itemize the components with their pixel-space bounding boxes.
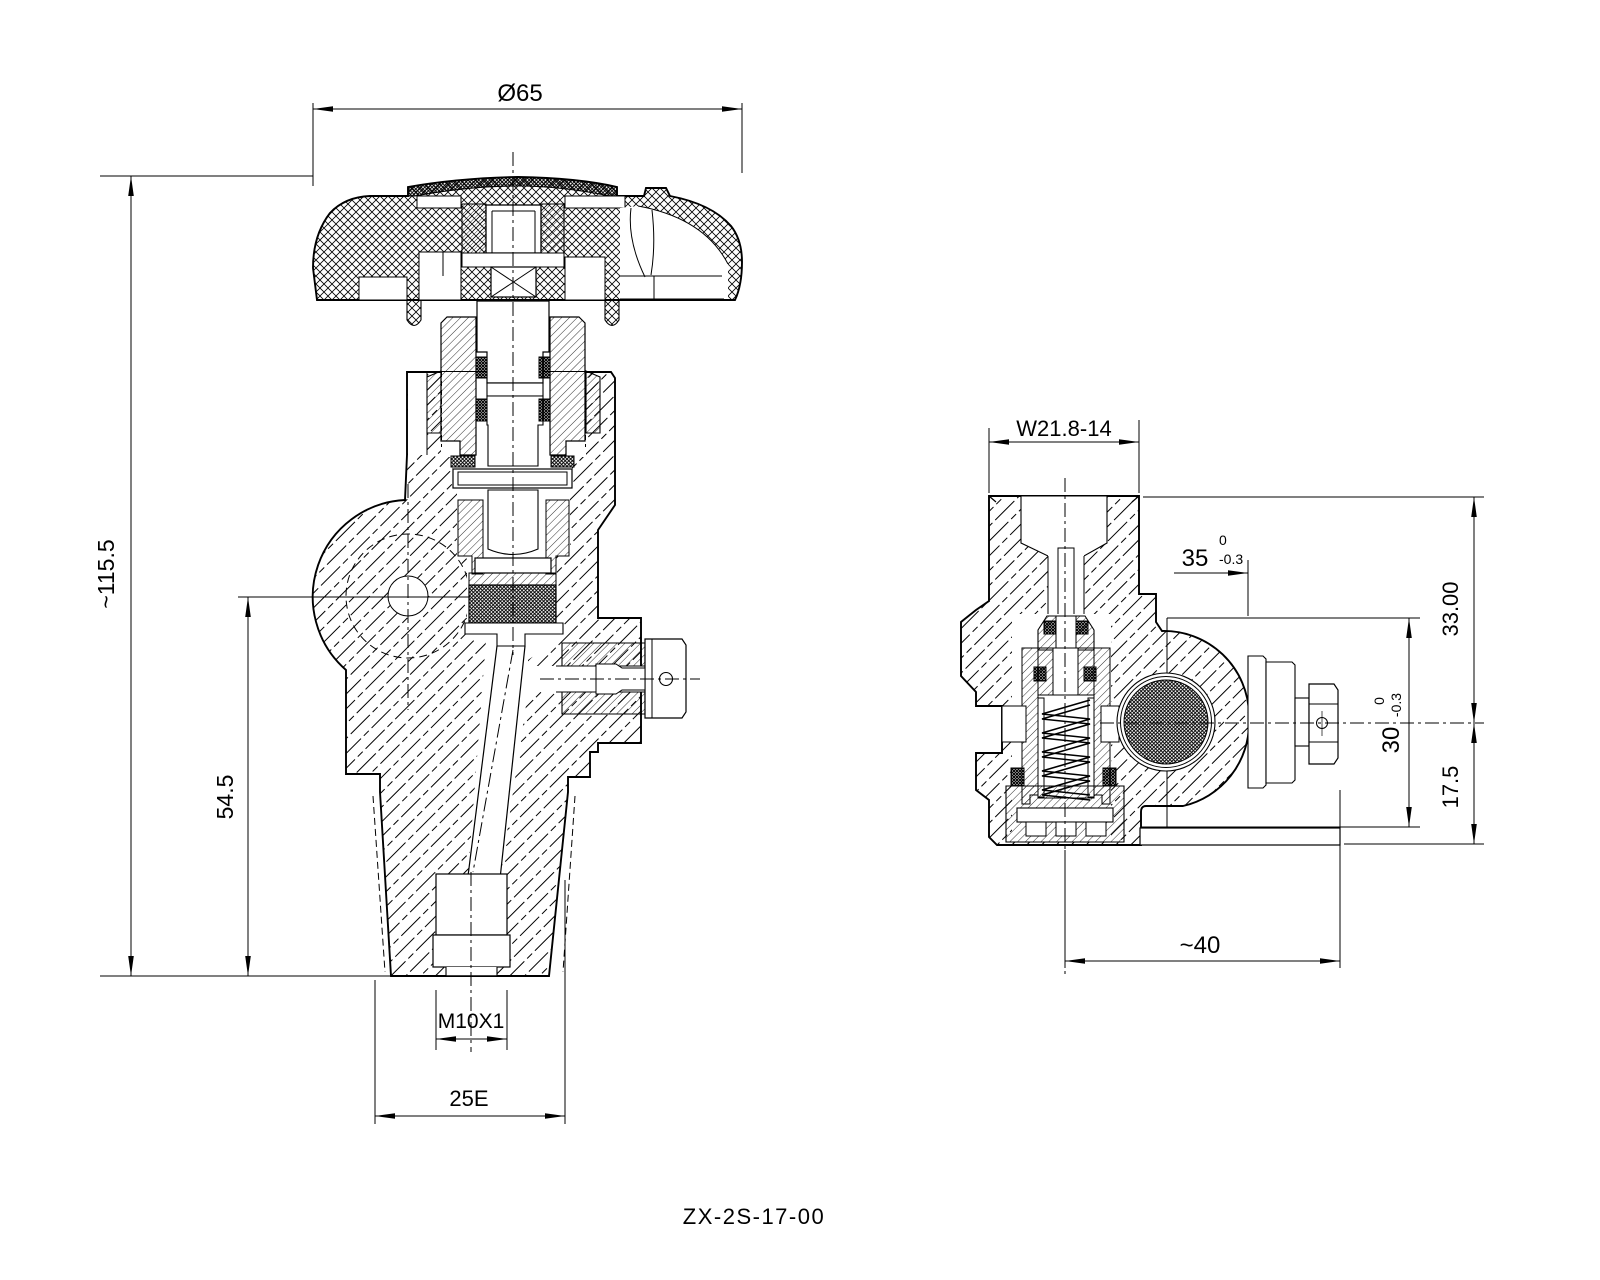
svg-text:54.5: 54.5	[212, 775, 238, 820]
svg-text:-0.3: -0.3	[1219, 551, 1243, 567]
svg-text:0: 0	[1371, 697, 1387, 705]
svg-text:17.5: 17.5	[1438, 766, 1463, 809]
svg-text:-0.3: -0.3	[1388, 693, 1404, 717]
svg-text:~115.5: ~115.5	[93, 539, 119, 608]
svg-text:Ø65: Ø65	[497, 80, 542, 107]
svg-text:ZX-2S-17-00: ZX-2S-17-00	[683, 1204, 825, 1229]
svg-text:0: 0	[1219, 532, 1227, 548]
svg-text:M10X1: M10X1	[438, 1010, 505, 1033]
svg-text:30: 30	[1378, 727, 1405, 754]
svg-text:~40: ~40	[1180, 932, 1221, 959]
svg-text:33.00: 33.00	[1438, 581, 1463, 636]
svg-text:35: 35	[1182, 545, 1209, 572]
svg-text:W21.8-14: W21.8-14	[1016, 416, 1111, 441]
svg-text:25E: 25E	[449, 1086, 488, 1111]
